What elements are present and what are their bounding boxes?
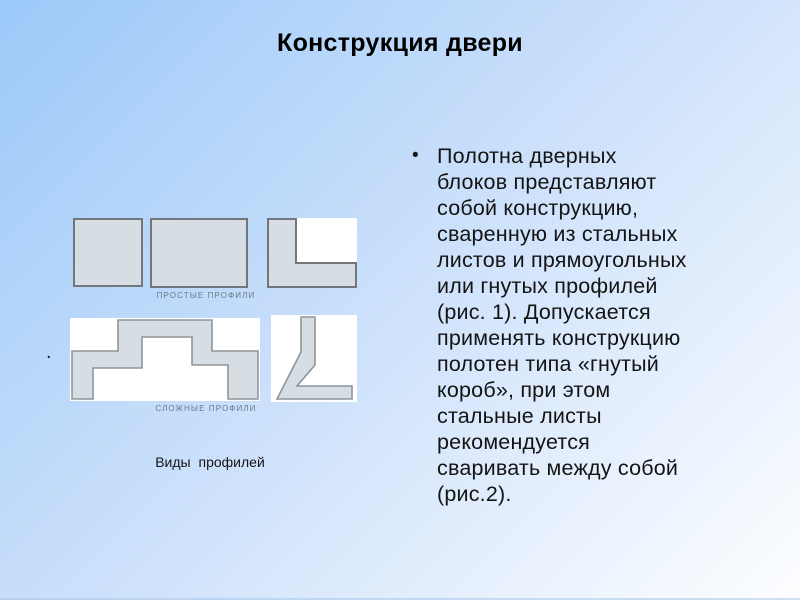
bullet-marker: • xyxy=(412,143,437,169)
bent-profile-panel xyxy=(271,315,357,402)
figure-caption: Виды профилей xyxy=(110,454,310,470)
bullet-text: Полотна дверных блоков представляют собо… xyxy=(437,143,764,507)
simple-profile-corner xyxy=(267,218,357,288)
bent-profile-drawing xyxy=(271,315,357,402)
simple-profile-square xyxy=(73,218,143,287)
slide: Конструкция двери ПРОСТЫЕ ПРОФИЛИ СЛОЖНЫ… xyxy=(0,0,800,600)
simple-profile-rectangle xyxy=(150,218,248,288)
corner-notch xyxy=(296,218,357,263)
stray-bullet-dot: . xyxy=(46,341,52,364)
bent-profile-outline xyxy=(277,317,352,399)
complex-profiles-label: СЛОЖНЫЕ ПРОФИЛИ xyxy=(68,404,344,413)
simple-profiles-label: ПРОСТЫЕ ПРОФИЛИ xyxy=(68,291,344,300)
body-text-block: • Полотна дверных блоков представляют со… xyxy=(412,143,764,507)
complex-profile-drawing xyxy=(70,318,260,401)
stepped-profile-outline xyxy=(72,320,258,399)
complex-profile-panel xyxy=(70,318,260,401)
slide-title: Конструкция двери xyxy=(0,29,800,58)
